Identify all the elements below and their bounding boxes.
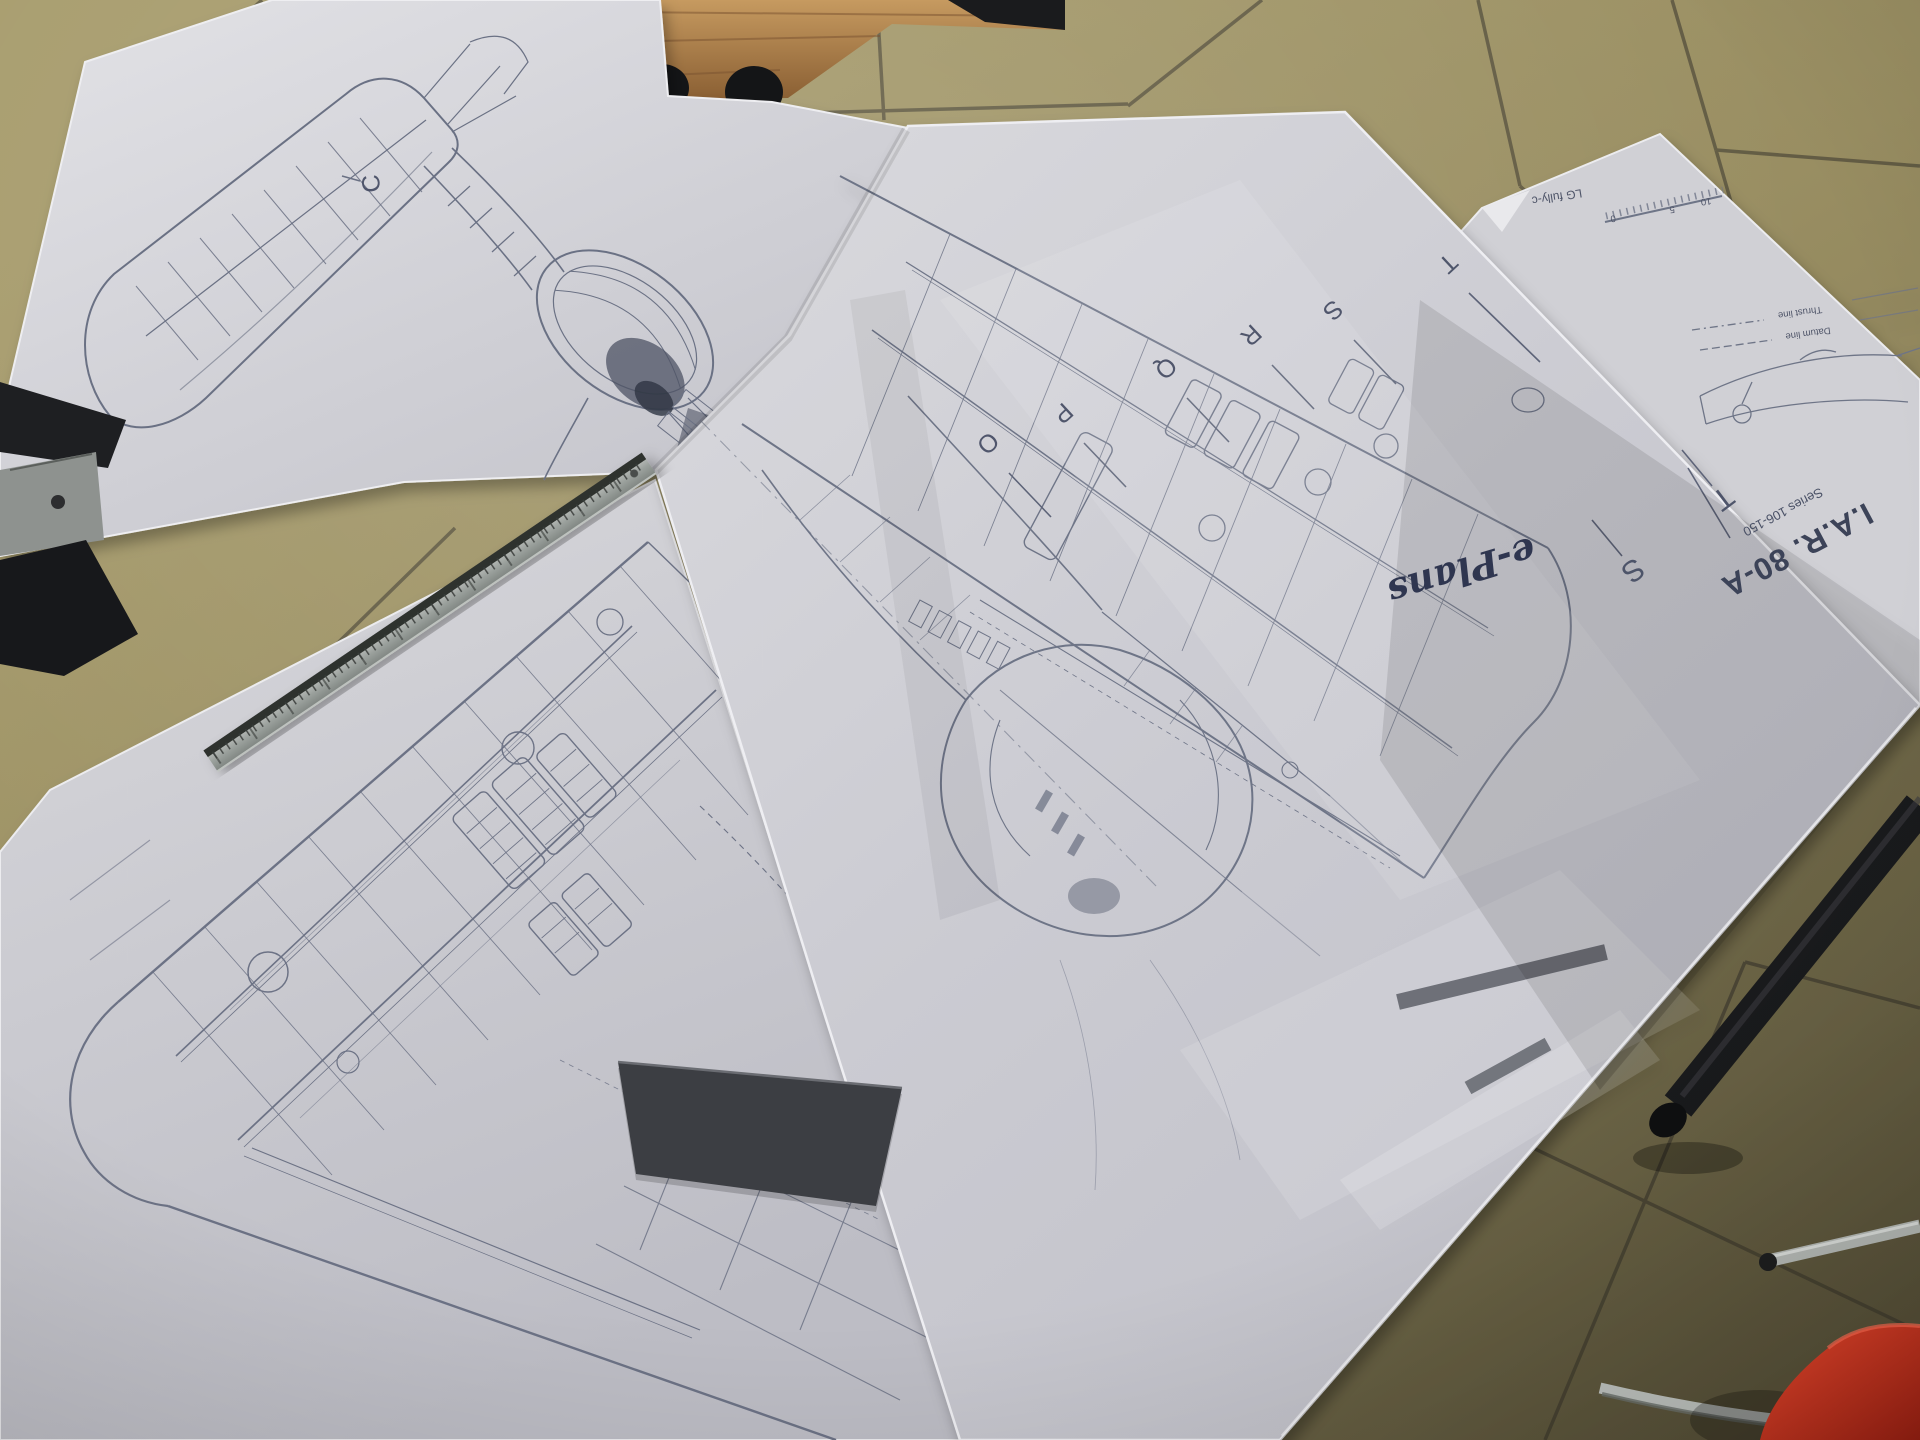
scene-canvas	[0, 0, 1920, 1440]
photo-blueprints-on-floor: C O P Q R S T S T I.A.R. 80-A Series 106…	[0, 0, 1920, 1440]
scale-tick-10: 10	[1700, 195, 1712, 207]
station-letter-c: C	[357, 172, 388, 194]
vignette	[0, 0, 1920, 1440]
